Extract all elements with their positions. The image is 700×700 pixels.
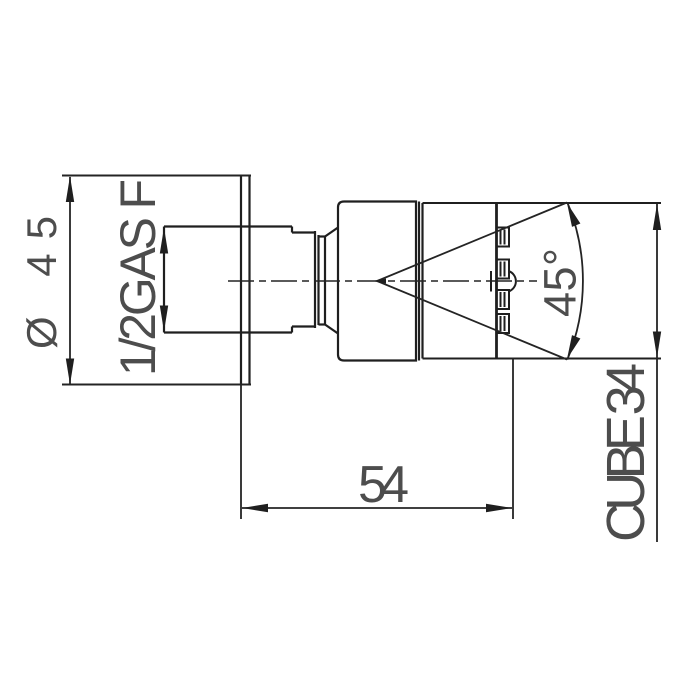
depth-arrow-right: [486, 504, 512, 512]
inlet-fitting: [164, 227, 315, 333]
depth-arrow-left: [242, 504, 268, 512]
label-product-height: CUBE 34: [596, 362, 656, 542]
label-diameter: Ø 45: [18, 215, 65, 349]
dim-arrow-down: [66, 359, 74, 385]
nozzle: [497, 260, 510, 279]
arc-arrow-bottom: [567, 335, 580, 359]
drawing-canvas: Ø 45 1/2GAS F 45° 54 CUBE 34: [0, 0, 700, 700]
label-thread: 1/2GAS F: [110, 178, 166, 376]
nozzle: [497, 314, 510, 333]
dim-arrow-up: [66, 176, 74, 202]
height-arrow-up: [653, 204, 661, 230]
label-spray-angle: 45°: [535, 247, 586, 317]
height-arrow-down: [653, 332, 661, 358]
label-depth: 54: [358, 456, 410, 514]
technical-drawing-svg: Ø 45 1/2GAS F 45° 54 CUBE 34: [0, 0, 700, 700]
nozzle: [497, 290, 510, 309]
arc-arrow-top: [567, 203, 580, 227]
